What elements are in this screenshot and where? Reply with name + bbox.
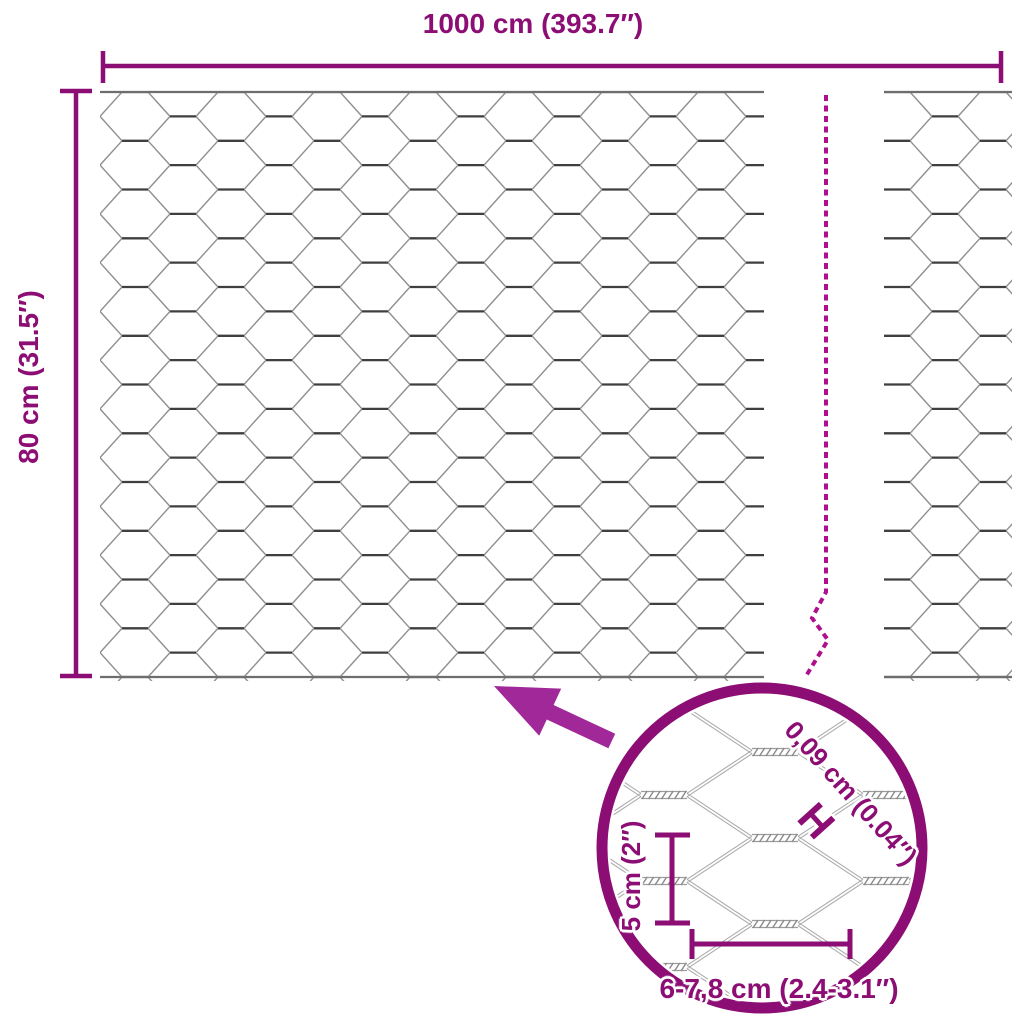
break-line xyxy=(806,95,828,676)
mesh-cell-width-label: 6-7,8 cm (2.4-3.1″) xyxy=(659,975,898,1003)
product-dimension-diagram: 1000 cm (393.7″) 80 cm (31.5″) 0,09 cm (… xyxy=(0,0,1024,1024)
mesh-twisted-flats xyxy=(884,43,1006,726)
zoom-arrow-icon xyxy=(494,686,615,748)
wire-mesh-diagram-canvas xyxy=(0,0,1024,1024)
detail-circle-background xyxy=(607,693,917,1003)
dimension-lines xyxy=(60,51,1001,677)
width-dimension-label: 1000 cm (393.7″) xyxy=(423,10,643,38)
mesh-twisted-flats xyxy=(122,43,772,726)
mesh-diagonal-wires xyxy=(100,43,794,726)
height-dimension-label: 80 cm (31.5″) xyxy=(15,290,43,464)
mesh-cell-height-label: 5 cm (2″) xyxy=(618,821,644,932)
